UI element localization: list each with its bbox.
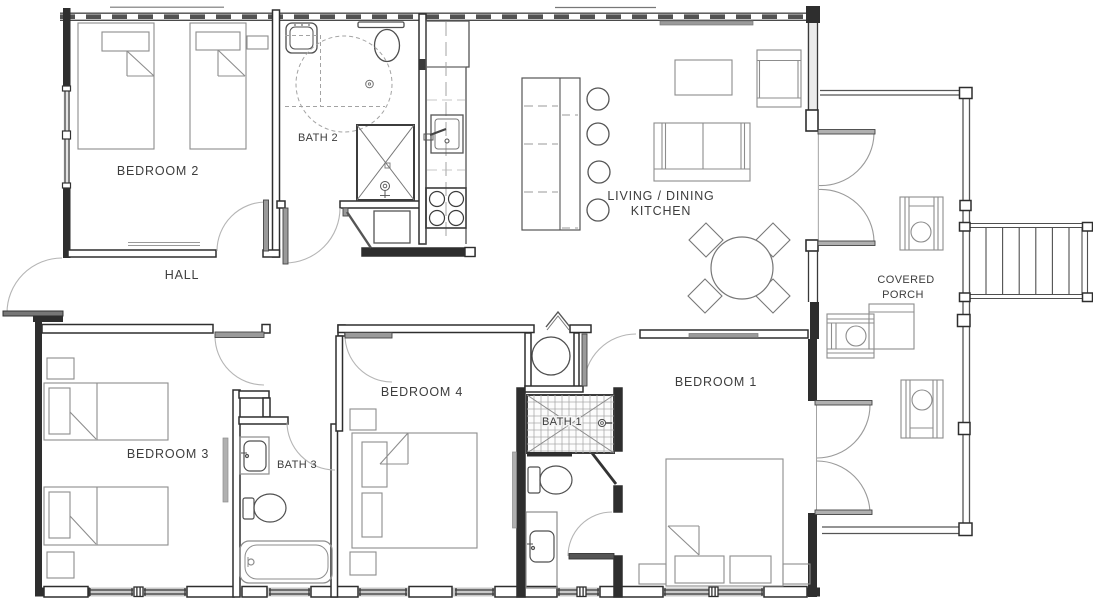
svg-text:LIVING / DINING: LIVING / DINING <box>607 189 714 203</box>
svg-text:BEDROOM 1: BEDROOM 1 <box>675 375 757 389</box>
svg-text:BATH 2: BATH 2 <box>298 132 338 144</box>
svg-text:BEDROOM 2: BEDROOM 2 <box>117 164 199 178</box>
svg-text:BEDROOM 4: BEDROOM 4 <box>381 385 463 399</box>
svg-text:PORCH: PORCH <box>882 289 924 301</box>
svg-text:KITCHEN: KITCHEN <box>631 204 691 218</box>
svg-text:HALL: HALL <box>165 268 199 282</box>
svg-text:COVERED: COVERED <box>877 274 934 286</box>
svg-text:BATH 1: BATH 1 <box>542 416 582 428</box>
svg-text:BATH 3: BATH 3 <box>277 459 317 471</box>
svg-text:BEDROOM 3: BEDROOM 3 <box>127 447 209 461</box>
